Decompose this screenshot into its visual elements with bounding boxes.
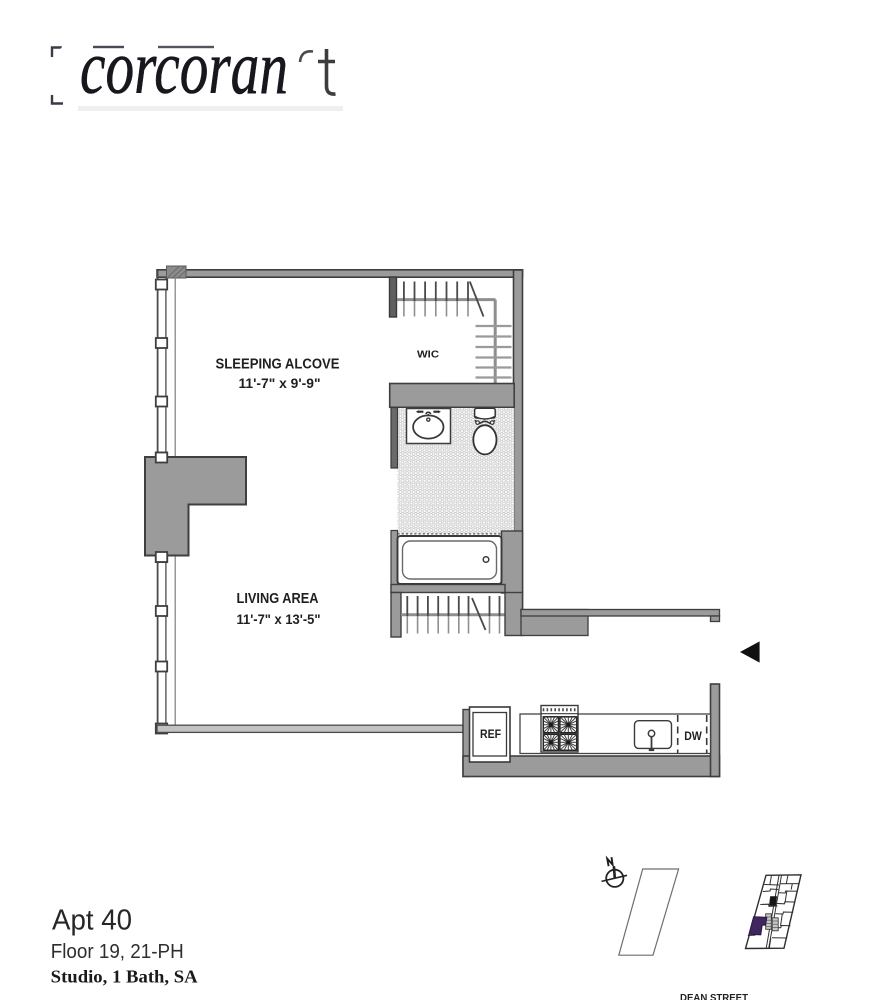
svg-text:REF: REF: [480, 727, 501, 741]
svg-text:SLEEPING ALCOVE: SLEEPING ALCOVE: [216, 357, 340, 373]
svg-text:corcoran: corcoran: [80, 26, 288, 110]
svg-text:LIVING AREA: LIVING AREA: [237, 591, 319, 607]
svg-text:WIC: WIC: [417, 349, 439, 361]
svg-text:DW: DW: [684, 731, 702, 743]
svg-text:Apt 40: Apt 40: [52, 905, 132, 937]
svg-text:DEAN STREET: DEAN STREET: [680, 993, 748, 1000]
svg-text:11'-7" x 9'-9": 11'-7" x 9'-9": [239, 375, 321, 391]
svg-text:11'-7" x 13'-5": 11'-7" x 13'-5": [237, 611, 321, 627]
svg-text:Studio, 1 Bath, SA: Studio, 1 Bath, SA: [51, 967, 198, 987]
svg-text:Floor 19, 21-PH: Floor 19, 21-PH: [51, 941, 184, 963]
